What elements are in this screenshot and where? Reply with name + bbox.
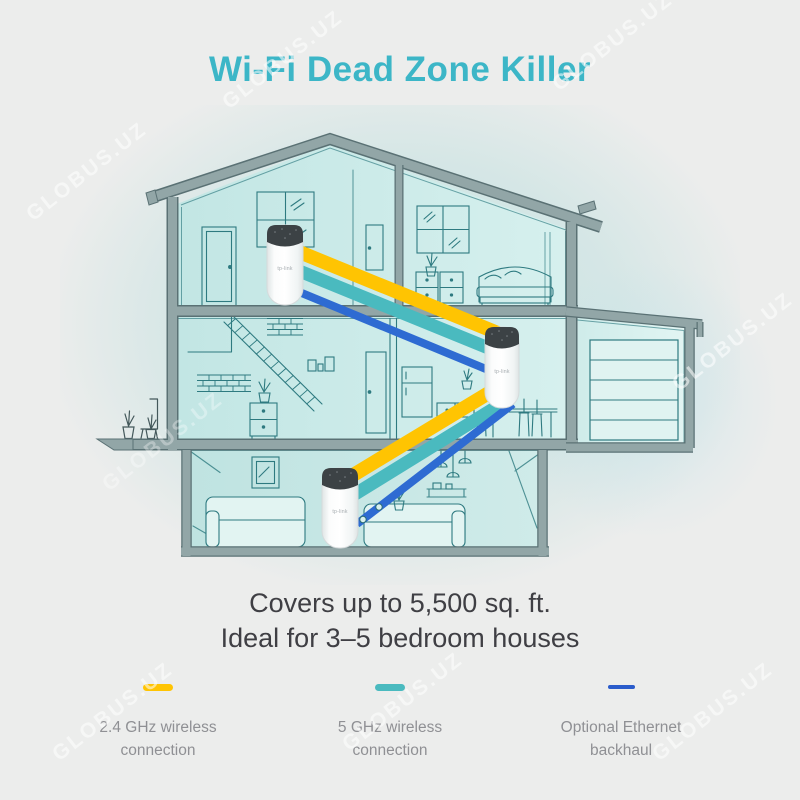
deco-unit-3: tp-link: [322, 468, 358, 548]
legend-dash-5ghz-icon: [375, 684, 405, 691]
tp-link-logo: tp-link: [494, 369, 509, 375]
legend-label-24ghz-line2: connection: [48, 739, 268, 762]
legend-item-5ghz: 5 GHz wireless connection: [280, 682, 500, 763]
legend-label-ethernet-line2: backhaul: [511, 739, 731, 762]
legend-dash-ethernet-icon: [608, 685, 635, 689]
coverage-line: Covers up to 5,500 sq. ft.: [0, 586, 800, 621]
page: GLOBUS.UZ GLOBUS.UZ GLOBUS.UZ GLOBUS.UZ …: [0, 0, 800, 800]
legend-label-24ghz: 2.4 GHz wireless: [48, 716, 268, 739]
garage-door: [590, 340, 678, 440]
legend-item-ethernet: Optional Ethernet backhaul: [511, 682, 731, 763]
porch-slab: [97, 439, 133, 450]
legend-label-ethernet: Optional Ethernet: [511, 716, 731, 739]
tp-link-logo: tp-link: [332, 509, 347, 515]
house-cutaway-illustration: tp-link tp-link tp-link: [0, 0, 800, 800]
legend-label-5ghz: 5 GHz wireless: [280, 716, 500, 739]
coverage-caption: Covers up to 5,500 sq. ft. Ideal for 3–5…: [0, 586, 800, 656]
legend-label-5ghz-line2: connection: [280, 739, 500, 762]
deco-unit-1: tp-link: [267, 225, 303, 305]
deco-top-cap: [267, 225, 303, 247]
legend-dash-24ghz-icon: [143, 684, 173, 691]
deco-unit-2: tp-link: [485, 327, 519, 408]
ethernet-connector-dot: [376, 504, 382, 510]
porch-items: [123, 399, 158, 439]
ideal-line: Ideal for 3–5 bedroom houses: [0, 621, 800, 656]
deco-top-cap: [485, 327, 519, 349]
deco-top-cap: [322, 468, 358, 490]
legend-item-24ghz: 2.4 GHz wireless connection: [48, 682, 268, 763]
ethernet-connector-dot: [360, 516, 366, 522]
tp-link-logo: tp-link: [277, 266, 292, 272]
